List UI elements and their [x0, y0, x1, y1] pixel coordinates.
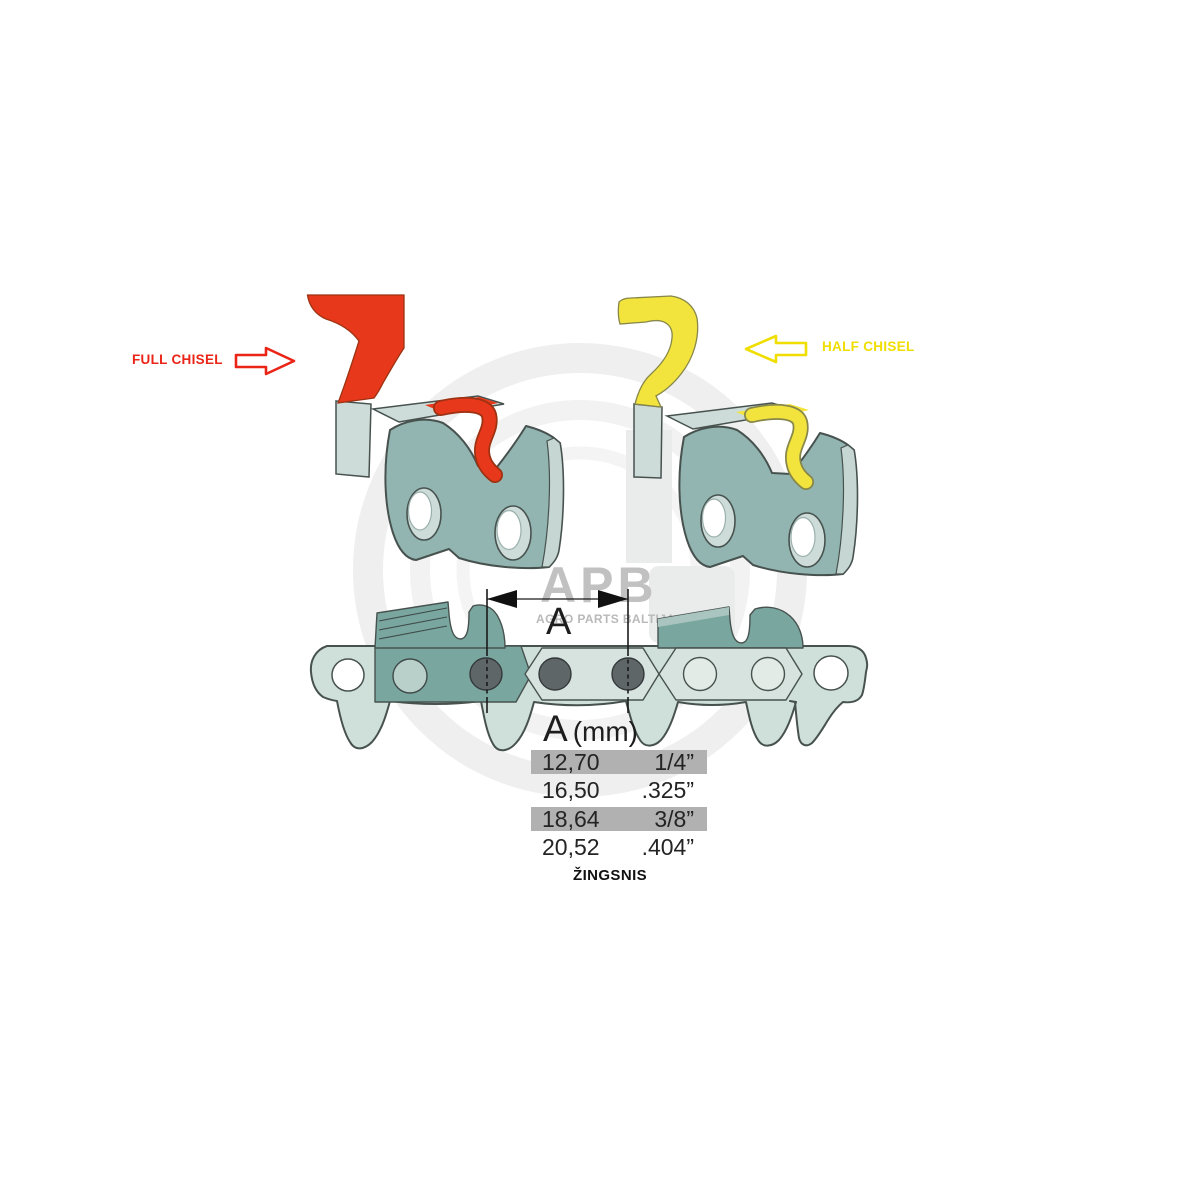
pitch-mm-value: 18,64 — [542, 806, 600, 833]
chain-rivet — [539, 658, 571, 690]
table-row: 18,64 3/8” — [531, 807, 707, 831]
chain-pitch-diagram: APB AGRO PARTS BALTIJA — [0, 0, 1188, 1188]
table-row: 12,70 1/4” — [531, 750, 707, 774]
full-chisel-shank — [336, 401, 371, 477]
chain-hole-tie-strap — [684, 658, 717, 691]
pitch-inch-value: 1/4” — [654, 749, 694, 776]
chain-hole-tie-strap — [752, 658, 785, 691]
table-row: 16,50 .325” — [531, 778, 707, 802]
full-chisel-shape-icon — [308, 295, 405, 403]
half-chisel-cutter-link — [667, 403, 857, 575]
dimension-a-label: A — [546, 601, 571, 644]
rivet-hole — [703, 499, 726, 537]
full-chisel-arrow-icon — [236, 348, 294, 374]
rivet-hole — [409, 492, 432, 530]
pitch-mm-value: 12,70 — [542, 749, 600, 776]
pitch-table-header-unit: (mm) — [573, 716, 638, 747]
full-chisel-label: FULL CHISEL — [132, 352, 223, 367]
half-chisel-shank — [634, 404, 662, 478]
chain-hole-left-end — [332, 659, 364, 691]
pitch-mm-value: 20,52 — [542, 834, 600, 861]
pitch-mm-value: 16,50 — [542, 777, 600, 804]
dimension-arrowhead-left-icon — [487, 590, 517, 608]
rivet-hole — [497, 511, 521, 550]
half-chisel-label: HALF CHISEL — [822, 339, 915, 354]
half-chisel-arrow-icon — [746, 336, 806, 362]
pitch-inch-value: .325” — [642, 777, 694, 804]
table-row: 20,52 .404” — [531, 835, 707, 859]
pitch-inch-value: 3/8” — [654, 806, 694, 833]
rivet-hole — [791, 518, 815, 557]
chain-hole-right-end — [814, 656, 848, 690]
diagram-canvas: APB AGRO PARTS BALTIJA — [0, 0, 1188, 1188]
chain-rivet — [470, 658, 502, 690]
pitch-table-header-letter: A — [543, 708, 568, 749]
pitch-caption: ŽINGSNIS — [573, 867, 647, 884]
pitch-inch-value: .404” — [642, 834, 694, 861]
chain-hole-cutter — [393, 659, 427, 693]
pitch-table-header: A(mm) — [543, 708, 638, 750]
